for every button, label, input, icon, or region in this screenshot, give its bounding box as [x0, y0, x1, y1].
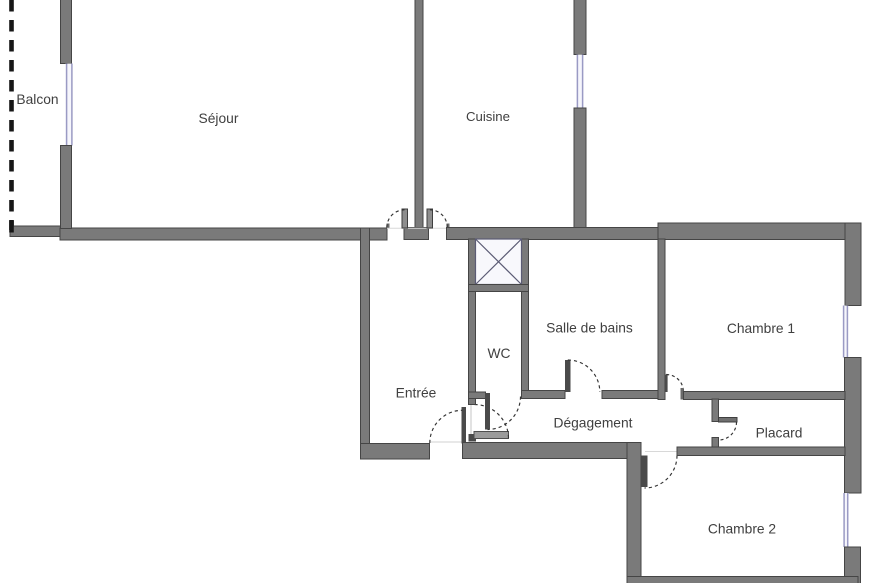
svg-text:Salle de bains: Salle de bains	[546, 321, 633, 336]
svg-text:Balcon: Balcon	[16, 92, 58, 107]
svg-text:WC: WC	[488, 346, 511, 361]
svg-text:Chambre 1: Chambre 1	[727, 321, 795, 336]
svg-text:Séjour: Séjour	[199, 111, 239, 126]
svg-text:Cuisine: Cuisine	[466, 109, 510, 124]
svg-text:Chambre 2: Chambre 2	[708, 522, 776, 537]
svg-text:Dégagement: Dégagement	[553, 416, 632, 431]
svg-text:Entrée: Entrée	[396, 386, 437, 401]
svg-text:Placard: Placard	[756, 426, 803, 441]
